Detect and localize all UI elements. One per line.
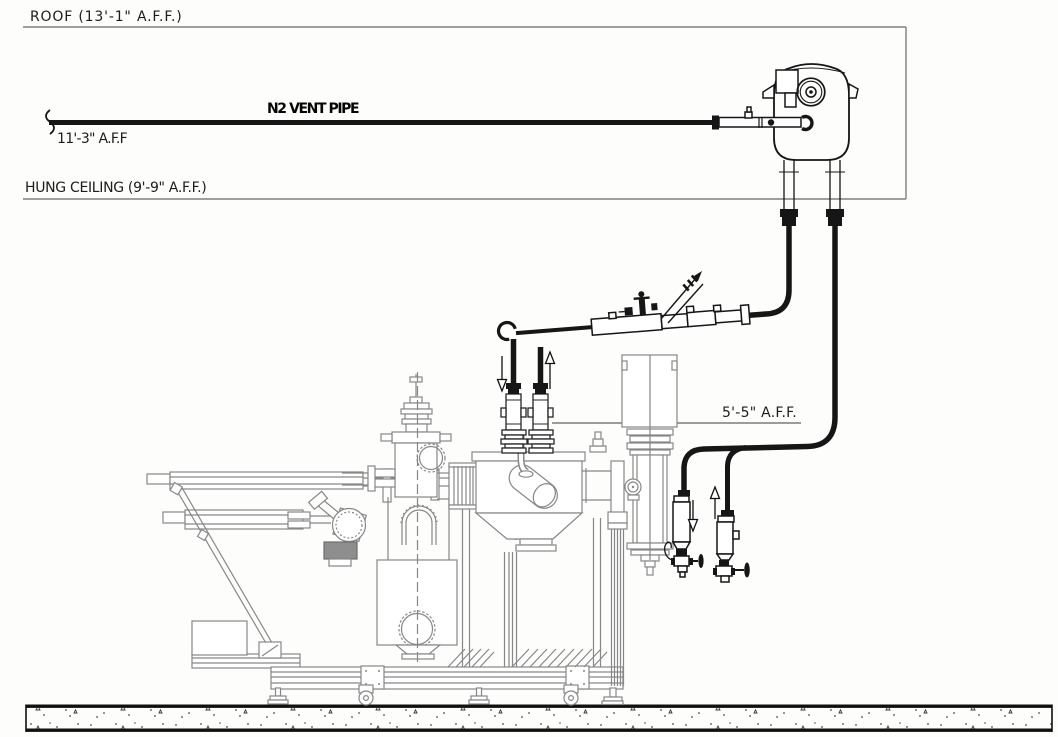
tank-port-icon [797, 78, 825, 106]
tank-lug [763, 85, 774, 98]
inline-filter-right [713, 510, 750, 582]
equipment-elevation-label: 5'-5" A.F.F. [722, 405, 797, 421]
valve-handwheel-icon [698, 554, 703, 568]
cad-canvas: ROOF (13'-1" A.F.F.) HUNG CEILING (9'-9"… [0, 0, 1058, 737]
turbo-column [608, 355, 677, 686]
pipe-end-hook [802, 117, 812, 130]
flow-arrow-down-icon [498, 356, 507, 391]
roof-label: ROOF (13'-1" A.F.F.) [30, 9, 182, 25]
leveling-foot [469, 688, 489, 704]
electronics-box [192, 621, 247, 655]
pipe-bolt-fitting [745, 112, 752, 118]
transfer-arm-lower [163, 510, 331, 529]
n2-vent-pipe-label: N2 VENT PIPE [267, 101, 360, 117]
piping-elevation-drawing: ROOF (13'-1" A.F.F.) HUNG CEILING (9'-9"… [0, 0, 1058, 737]
valve-handwheel-icon [744, 563, 750, 578]
purge-valve-right [713, 560, 750, 582]
leveling-foot [602, 688, 623, 705]
floor-slab [26, 705, 1052, 733]
inline-filter-left [665, 490, 704, 577]
chamber-motor [324, 542, 357, 559]
lid-bellows-fitting [501, 394, 527, 453]
small-process-chamber [309, 491, 367, 566]
manifold-elbow [498, 322, 515, 339]
tank-lug [849, 84, 858, 98]
lid-bellows-fitting [528, 394, 554, 453]
n2-vent-pipe-run [46, 107, 812, 134]
n2-receiver-tank [763, 64, 858, 226]
base-gusset-hatch [448, 649, 607, 667]
vent-pipe-elevation-label: 11'-3" A.F.F [57, 131, 128, 147]
column-strut [611, 461, 624, 514]
pipe-union-dot [768, 119, 774, 125]
caster-wheel-icon [359, 685, 373, 705]
caster-wheel-icon [564, 685, 578, 705]
equipment-assembly [147, 355, 677, 705]
annotations: ROOF (13'-1" A.F.F.) HUNG CEILING (9'-9"… [25, 9, 797, 421]
tank-leg [825, 160, 845, 226]
tank-leg [779, 160, 799, 226]
flow-arrow-up-icon [711, 487, 720, 519]
tank-drop-pipe-left [746, 226, 789, 316]
gate-valve [449, 463, 477, 509]
tank-drop-pipe-right [684, 226, 835, 496]
arch-flange [402, 506, 436, 545]
hung-ceiling-label: HUNG CEILING (9'-9" A.F.F.) [25, 180, 207, 196]
manifold-valve-cluster [617, 290, 658, 317]
leveling-foot [268, 688, 288, 704]
drop-branch-pipe [728, 448, 747, 515]
pipe-flange [712, 116, 719, 130]
chamber-funnel [476, 513, 582, 539]
